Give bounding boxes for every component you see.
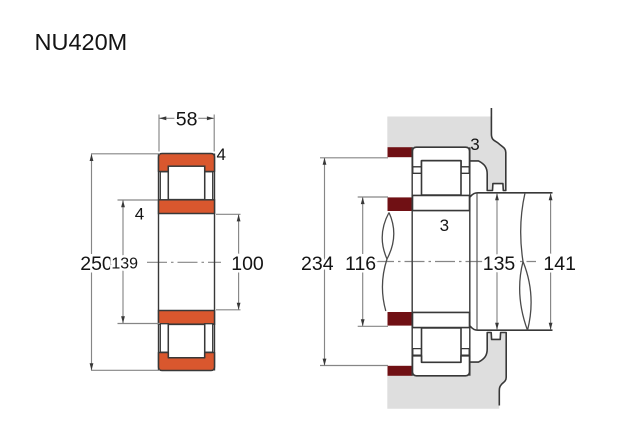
svg-text:234: 234 <box>301 253 334 275</box>
svg-text:116: 116 <box>345 253 376 275</box>
svg-text:4: 4 <box>217 145 226 164</box>
svg-text:3: 3 <box>470 135 479 154</box>
svg-text:4: 4 <box>135 205 144 224</box>
svg-text:250: 250 <box>80 253 113 275</box>
svg-text:135: 135 <box>483 253 516 275</box>
svg-text:141: 141 <box>543 253 576 275</box>
svg-text:100: 100 <box>231 253 264 275</box>
svg-text:3: 3 <box>440 216 449 235</box>
svg-text:58: 58 <box>176 109 198 131</box>
svg-text:139: 139 <box>111 256 138 273</box>
svg-text:NU420M: NU420M <box>35 29 128 55</box>
